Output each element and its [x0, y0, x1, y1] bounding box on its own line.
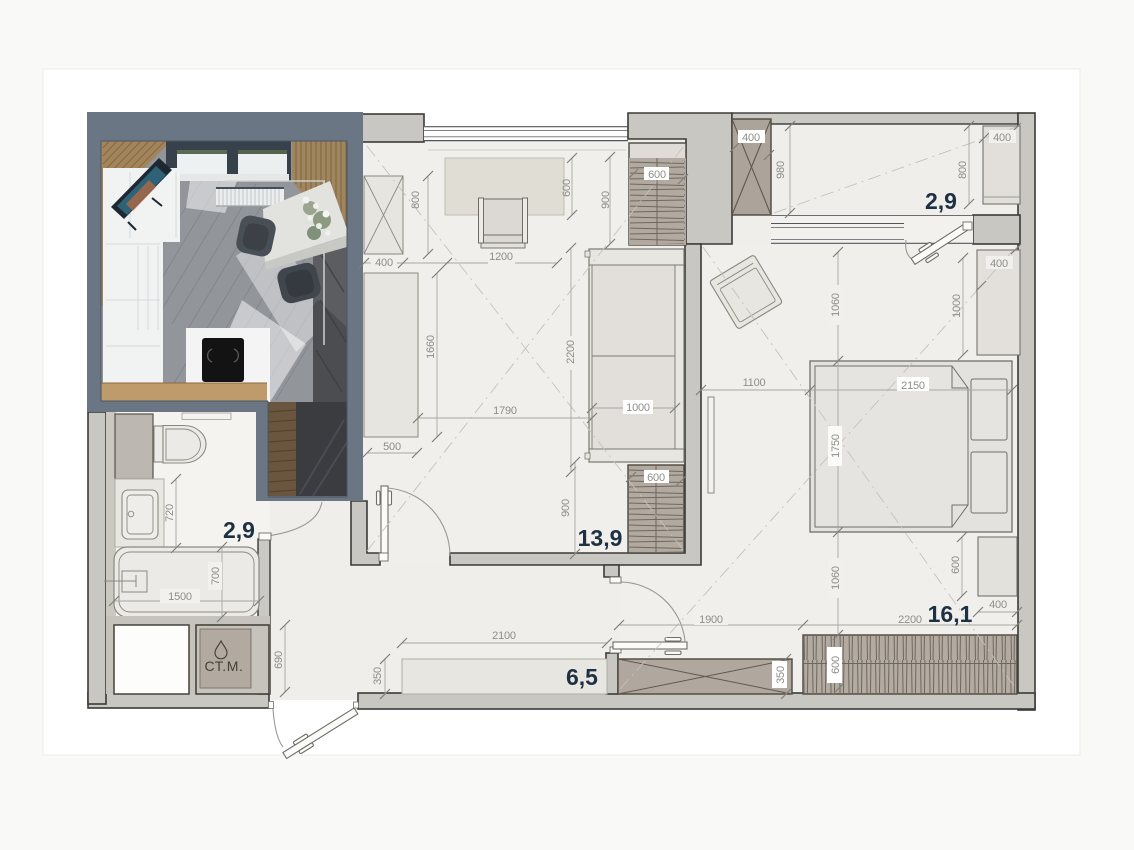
svg-text:2200: 2200	[565, 340, 577, 364]
svg-text:2200: 2200	[898, 614, 922, 626]
svg-text:1200: 1200	[489, 251, 513, 263]
svg-text:980: 980	[775, 161, 787, 179]
svg-text:2,9: 2,9	[925, 188, 957, 214]
svg-text:350: 350	[775, 666, 787, 684]
svg-text:1000: 1000	[626, 402, 650, 414]
svg-text:1660: 1660	[425, 335, 437, 359]
svg-text:350: 350	[372, 667, 384, 685]
svg-text:400: 400	[375, 257, 393, 269]
svg-text:400: 400	[993, 132, 1011, 144]
svg-text:900: 900	[600, 191, 612, 209]
svg-text:1900: 1900	[699, 614, 723, 626]
svg-text:500: 500	[383, 441, 401, 453]
svg-text:1500: 1500	[168, 591, 192, 603]
svg-text:900: 900	[560, 499, 572, 517]
svg-text:400: 400	[742, 132, 760, 144]
svg-text:2,9: 2,9	[223, 517, 255, 543]
svg-text:16,1: 16,1	[928, 601, 973, 627]
svg-text:600: 600	[830, 656, 842, 674]
svg-text:1790: 1790	[493, 405, 517, 417]
svg-text:600: 600	[561, 179, 573, 197]
svg-text:1000: 1000	[951, 294, 963, 318]
svg-text:2150: 2150	[901, 380, 925, 392]
svg-text:1060: 1060	[830, 566, 842, 590]
svg-text:1750: 1750	[830, 434, 842, 458]
svg-text:6,5: 6,5	[566, 664, 598, 690]
svg-text:400: 400	[989, 599, 1007, 611]
svg-text:600: 600	[647, 472, 665, 484]
svg-text:1100: 1100	[743, 377, 766, 389]
svg-text:690: 690	[273, 651, 285, 669]
svg-text:720: 720	[164, 504, 176, 522]
svg-text:СТ.М.: СТ.М.	[204, 658, 243, 674]
svg-text:2100: 2100	[492, 630, 516, 642]
svg-text:13,9: 13,9	[578, 525, 623, 551]
svg-text:600: 600	[648, 169, 666, 181]
svg-text:700: 700	[210, 567, 222, 585]
svg-text:800: 800	[957, 161, 969, 179]
svg-text:400: 400	[990, 258, 1008, 270]
svg-text:800: 800	[410, 191, 422, 209]
svg-text:600: 600	[950, 556, 962, 574]
svg-text:1060: 1060	[830, 293, 842, 317]
